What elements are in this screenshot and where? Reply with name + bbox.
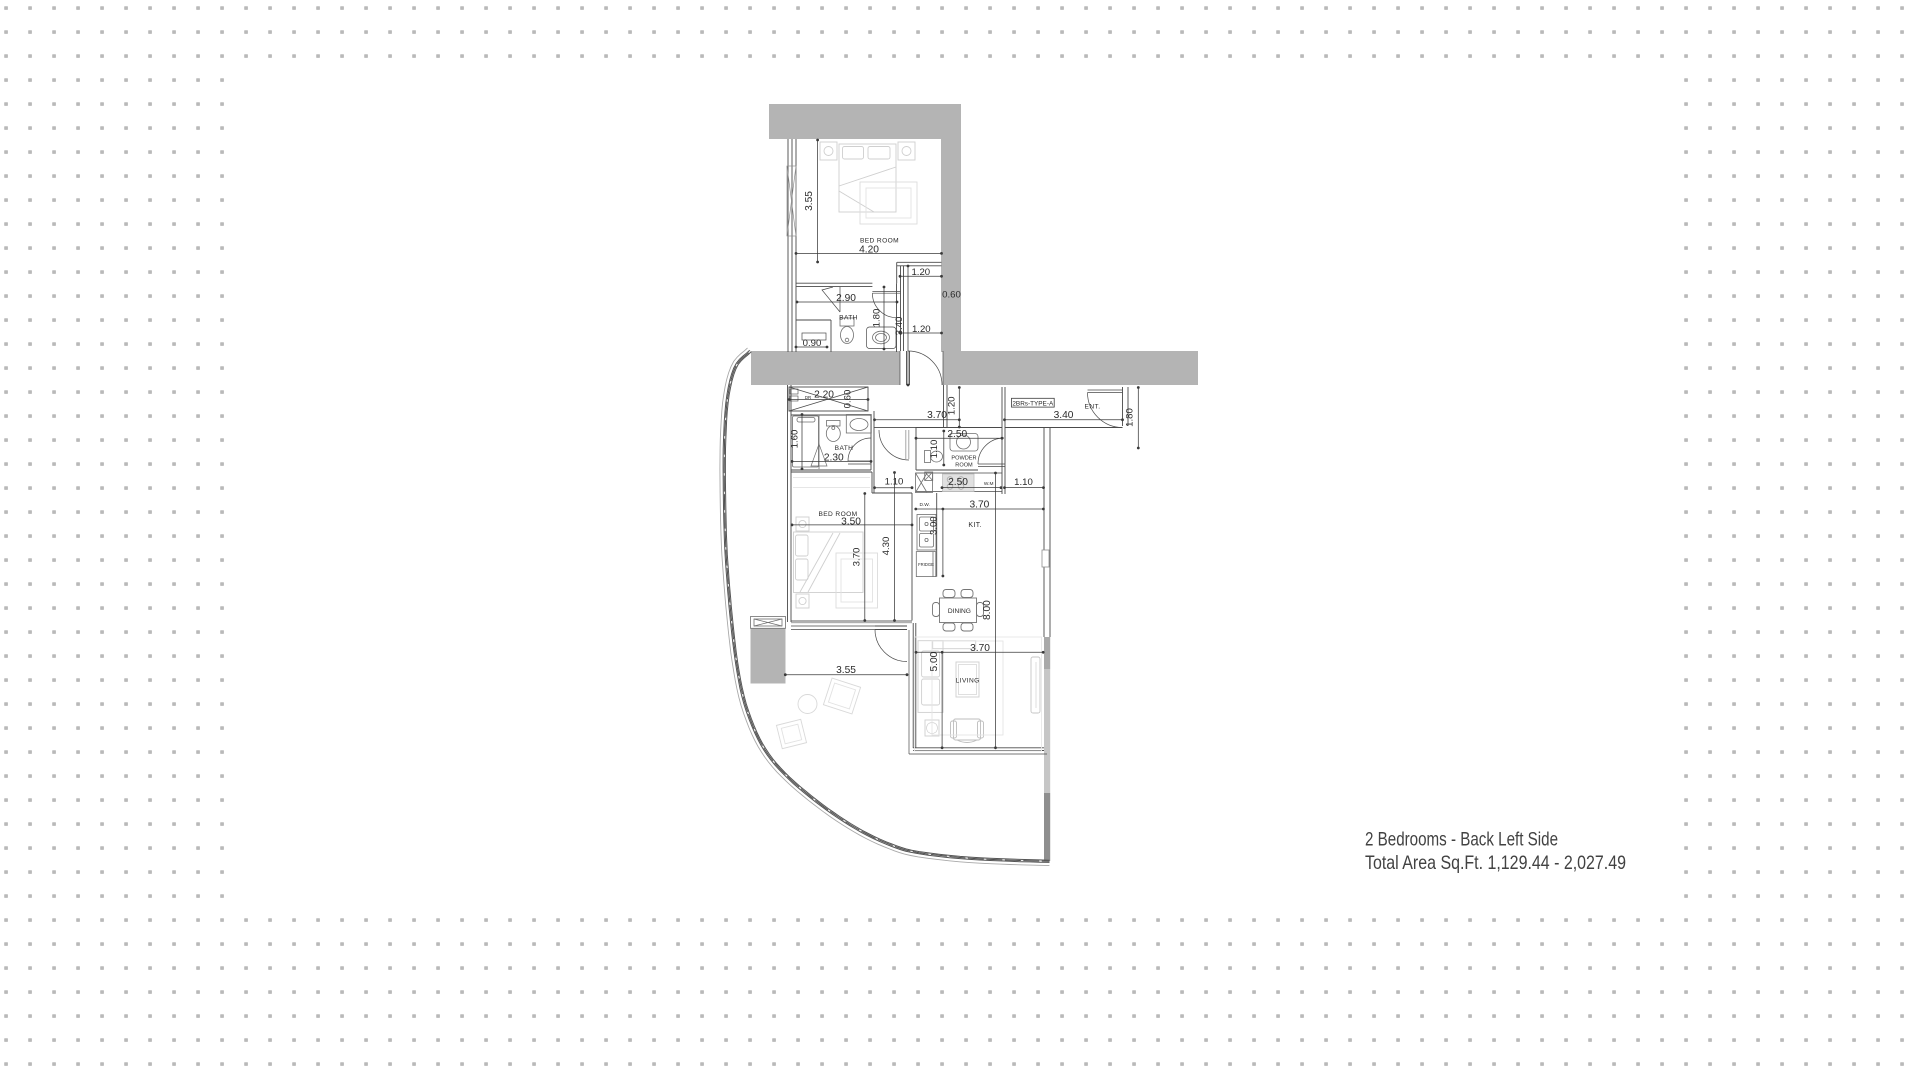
svg-text:KIT.: KIT. [968, 522, 982, 529]
svg-text:1.60: 1.60 [790, 430, 801, 449]
svg-text:3.40: 3.40 [1054, 410, 1074, 421]
svg-text:2.50: 2.50 [948, 477, 968, 488]
svg-text:DINING: DINING [948, 608, 971, 615]
svg-text:3.55: 3.55 [836, 665, 856, 676]
svg-text:BATH: BATH [835, 445, 854, 452]
svg-text:3.70: 3.70 [970, 643, 990, 654]
svg-text:0.90: 0.90 [803, 338, 822, 349]
svg-text:3.40: 3.40 [894, 317, 905, 336]
svg-text:POWDER: POWDER [951, 456, 976, 462]
svg-text:1.10: 1.10 [1014, 477, 1033, 488]
svg-text:BED ROOM: BED ROOM [860, 238, 899, 245]
svg-text:D.W.: D.W. [919, 502, 929, 508]
svg-text:LIVING: LIVING [956, 677, 980, 684]
svg-text:DR: DR [805, 395, 811, 400]
svg-text:0.60: 0.60 [842, 390, 853, 409]
svg-text:8.00: 8.00 [982, 600, 993, 620]
svg-text:3.70: 3.70 [969, 499, 989, 510]
svg-text:ENT.: ENT. [1085, 404, 1101, 411]
svg-text:5.00: 5.00 [929, 651, 940, 671]
svg-text:3.55: 3.55 [804, 191, 815, 211]
svg-text:1.20: 1.20 [947, 396, 958, 415]
svg-text:W.M: W.M [984, 481, 994, 487]
svg-text:0.60: 0.60 [942, 290, 961, 301]
svg-text:Total Area Sq.Ft. 1,129.44 - 2: Total Area Sq.Ft. 1,129.44 - 2,027.49 [1365, 853, 1626, 874]
svg-text:3.00: 3.00 [928, 516, 939, 535]
svg-text:2BRs-TYPE-A: 2BRs-TYPE-A [1012, 400, 1054, 407]
svg-text:4.30: 4.30 [881, 537, 892, 556]
svg-text:4.20: 4.20 [859, 245, 879, 256]
svg-text:2.50: 2.50 [947, 429, 967, 440]
svg-text:1.10: 1.10 [885, 477, 904, 488]
svg-text:1.20: 1.20 [911, 267, 930, 278]
svg-text:1.20: 1.20 [912, 324, 931, 335]
svg-text:2.90: 2.90 [836, 293, 856, 304]
svg-text:3.70: 3.70 [852, 548, 863, 567]
svg-text:3.50: 3.50 [841, 516, 861, 527]
svg-text:3.70: 3.70 [927, 410, 947, 421]
svg-text:BATH: BATH [839, 314, 858, 321]
svg-text:ROOM: ROOM [955, 463, 973, 469]
svg-text:1.80: 1.80 [871, 309, 882, 328]
svg-text:2 Bedrooms - Back Left Side: 2 Bedrooms - Back Left Side [1365, 829, 1558, 850]
svg-text:1.80: 1.80 [1125, 408, 1136, 427]
svg-text:2.20: 2.20 [814, 389, 834, 400]
svg-text:FRIDGE: FRIDGE [918, 562, 934, 567]
svg-text:1.10: 1.10 [929, 440, 940, 459]
svg-text:2.30: 2.30 [824, 452, 844, 463]
